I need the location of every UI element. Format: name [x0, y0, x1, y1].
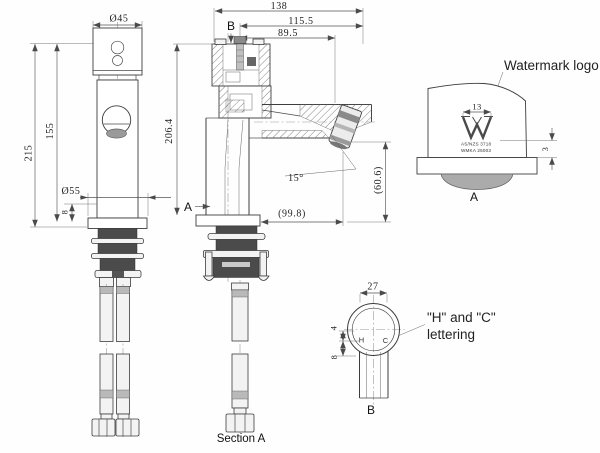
dim-dia-top: Ø45 [109, 14, 128, 25]
section-view: B 138 115.5 89.5 [164, 1, 391, 445]
detail-a-aerator [441, 174, 513, 190]
technical-drawing-canvas: 215 155 Ø45 Ø55 8 B [0, 0, 600, 453]
detail-b-letter-dims: 4 8 [329, 325, 360, 359]
dim-width-mid: 115.5 [288, 16, 313, 27]
section-caption: Section A [217, 433, 266, 445]
dim-width-spout: 89.5 [278, 28, 298, 39]
front-mounting-stack [92, 229, 144, 287]
dim-logo-depth: 3 [540, 147, 550, 152]
hc-callout-line2: lettering [427, 327, 475, 342]
dim-width-total: 138 [271, 1, 288, 12]
dim-letter-height: 8 [329, 355, 339, 360]
dim-height-total: 215 [24, 145, 35, 162]
hc-leader-line [399, 325, 425, 336]
detail-b-view: 27 H C 4 8 "H" and "C" lettering B [329, 282, 496, 418]
dim-letter-offset: 4 [329, 325, 339, 330]
technical-drawing-page: 215 155 Ø45 Ø55 8 B [0, 0, 600, 453]
watermark-callout: Watermark logo [504, 58, 599, 73]
detail-a-label: A [470, 190, 478, 204]
logo-text-line1: AS/NZS 3718 [461, 142, 492, 147]
cut-marker-b: B [227, 19, 235, 33]
dim-logo-width: 13 [472, 102, 481, 112]
dim-detail-b-outer: 27 [367, 282, 378, 293]
cold-letter: C [383, 336, 389, 345]
dim-section-height: 206.4 [164, 118, 175, 144]
dim-reach: (99.8) [278, 209, 306, 220]
hc-callout-line1: "H" and "C" [427, 310, 496, 325]
front-view: 215 155 Ø45 Ø55 8 [24, 14, 172, 439]
cut-marker-a: A [184, 200, 192, 214]
dim-base-thickness: 8 [60, 210, 70, 215]
hot-letter: H [359, 336, 364, 345]
detail-a-view: Watermark logo 13 AS/NZS 3718 WMKA 25003… [417, 58, 599, 204]
detail-b-label: B [367, 403, 375, 417]
dim-angle: 15° [288, 173, 304, 184]
front-supply-hoses [92, 284, 139, 438]
front-aerator [107, 129, 127, 138]
dim-dia-base: Ø55 [61, 186, 80, 197]
front-cap-body [93, 28, 142, 75]
section-column [206, 118, 271, 215]
section-cartridge-housing [212, 37, 270, 87]
detail-b-stem [360, 351, 389, 398]
section-base-flange [196, 215, 260, 226]
logo-text-line2: WMKA 25003 [461, 148, 491, 153]
detail-a-flange [417, 158, 537, 175]
dim-outlet-height: (60.6) [373, 166, 384, 194]
front-base-flange [88, 218, 147, 229]
section-supply-hose [226, 280, 254, 441]
section-valve-block [219, 86, 271, 118]
dim-height-body: 155 [45, 123, 56, 140]
section-mounting-stack [204, 226, 270, 281]
